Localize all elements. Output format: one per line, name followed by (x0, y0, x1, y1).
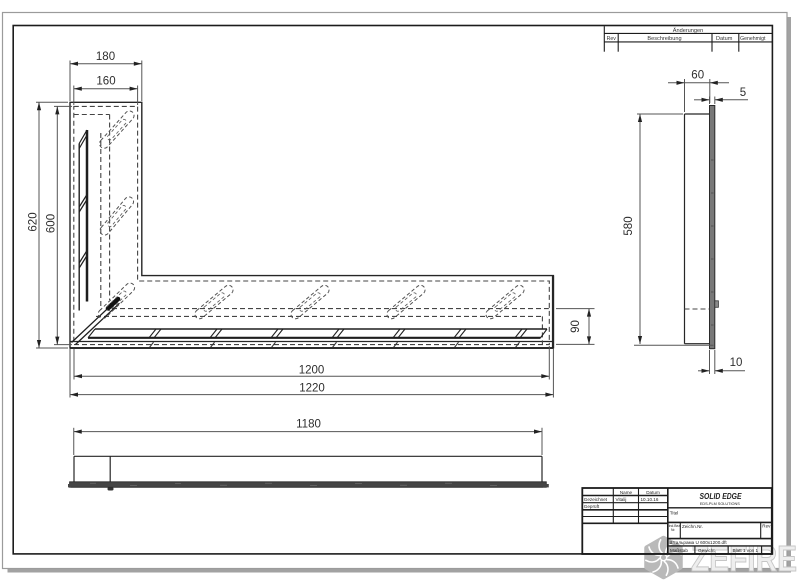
svg-text:Maßstab: Maßstab (670, 548, 688, 553)
svg-text:Gezeichnet: Gezeichnet (584, 497, 608, 502)
svg-text:Rev: Rev (762, 524, 771, 529)
svg-text:580: 580 (623, 216, 635, 235)
svg-text:1180: 1180 (296, 418, 321, 430)
svg-text:Blatt 1 von 1: Blatt 1 von 1 (733, 548, 759, 553)
svg-text:Zeichn.Nr.: Zeichn.Nr. (682, 524, 703, 529)
svg-text:10: 10 (730, 357, 743, 369)
svg-text:SOLID EDGE: SOLID EDGE (700, 491, 742, 501)
svg-text:5: 5 (740, 87, 746, 99)
svg-text:Gewicht: Gewicht (698, 548, 715, 553)
svg-text:Genehmigt: Genehmigt (740, 36, 766, 42)
svg-text:Vitalij: Vitalij (616, 497, 627, 502)
svg-text:Titel: Titel (670, 511, 679, 516)
svg-text:180: 180 (96, 51, 115, 63)
svg-text:Name: Name (620, 490, 633, 495)
svg-text:EDS-PLM SOLUTIONS: EDS-PLM SOLUTIONS (700, 502, 740, 506)
svg-text:Штальрама U 600х1200.dft: Штальрама U 600х1200.dft (670, 540, 728, 545)
svg-text:10.10.16: 10.10.16 (641, 497, 659, 502)
svg-text:Änderungen: Änderungen (673, 27, 703, 34)
svg-text:Rev: Rev (607, 36, 617, 42)
svg-text:60: 60 (691, 70, 704, 82)
svg-text:Nr.: Nr. (671, 528, 675, 532)
svg-text:90: 90 (570, 320, 582, 333)
svg-text:Beschreibung: Beschreibung (647, 36, 681, 42)
svg-text:1200: 1200 (299, 364, 325, 376)
svg-text:620: 620 (28, 212, 40, 231)
svg-text:160: 160 (96, 76, 115, 88)
svg-text:Datum: Datum (646, 490, 660, 495)
svg-text:Geprüft: Geprüft (584, 504, 600, 509)
svg-text:600: 600 (46, 214, 58, 233)
svg-text:Datum: Datum (716, 36, 733, 42)
svg-text:1220: 1220 (299, 383, 325, 395)
